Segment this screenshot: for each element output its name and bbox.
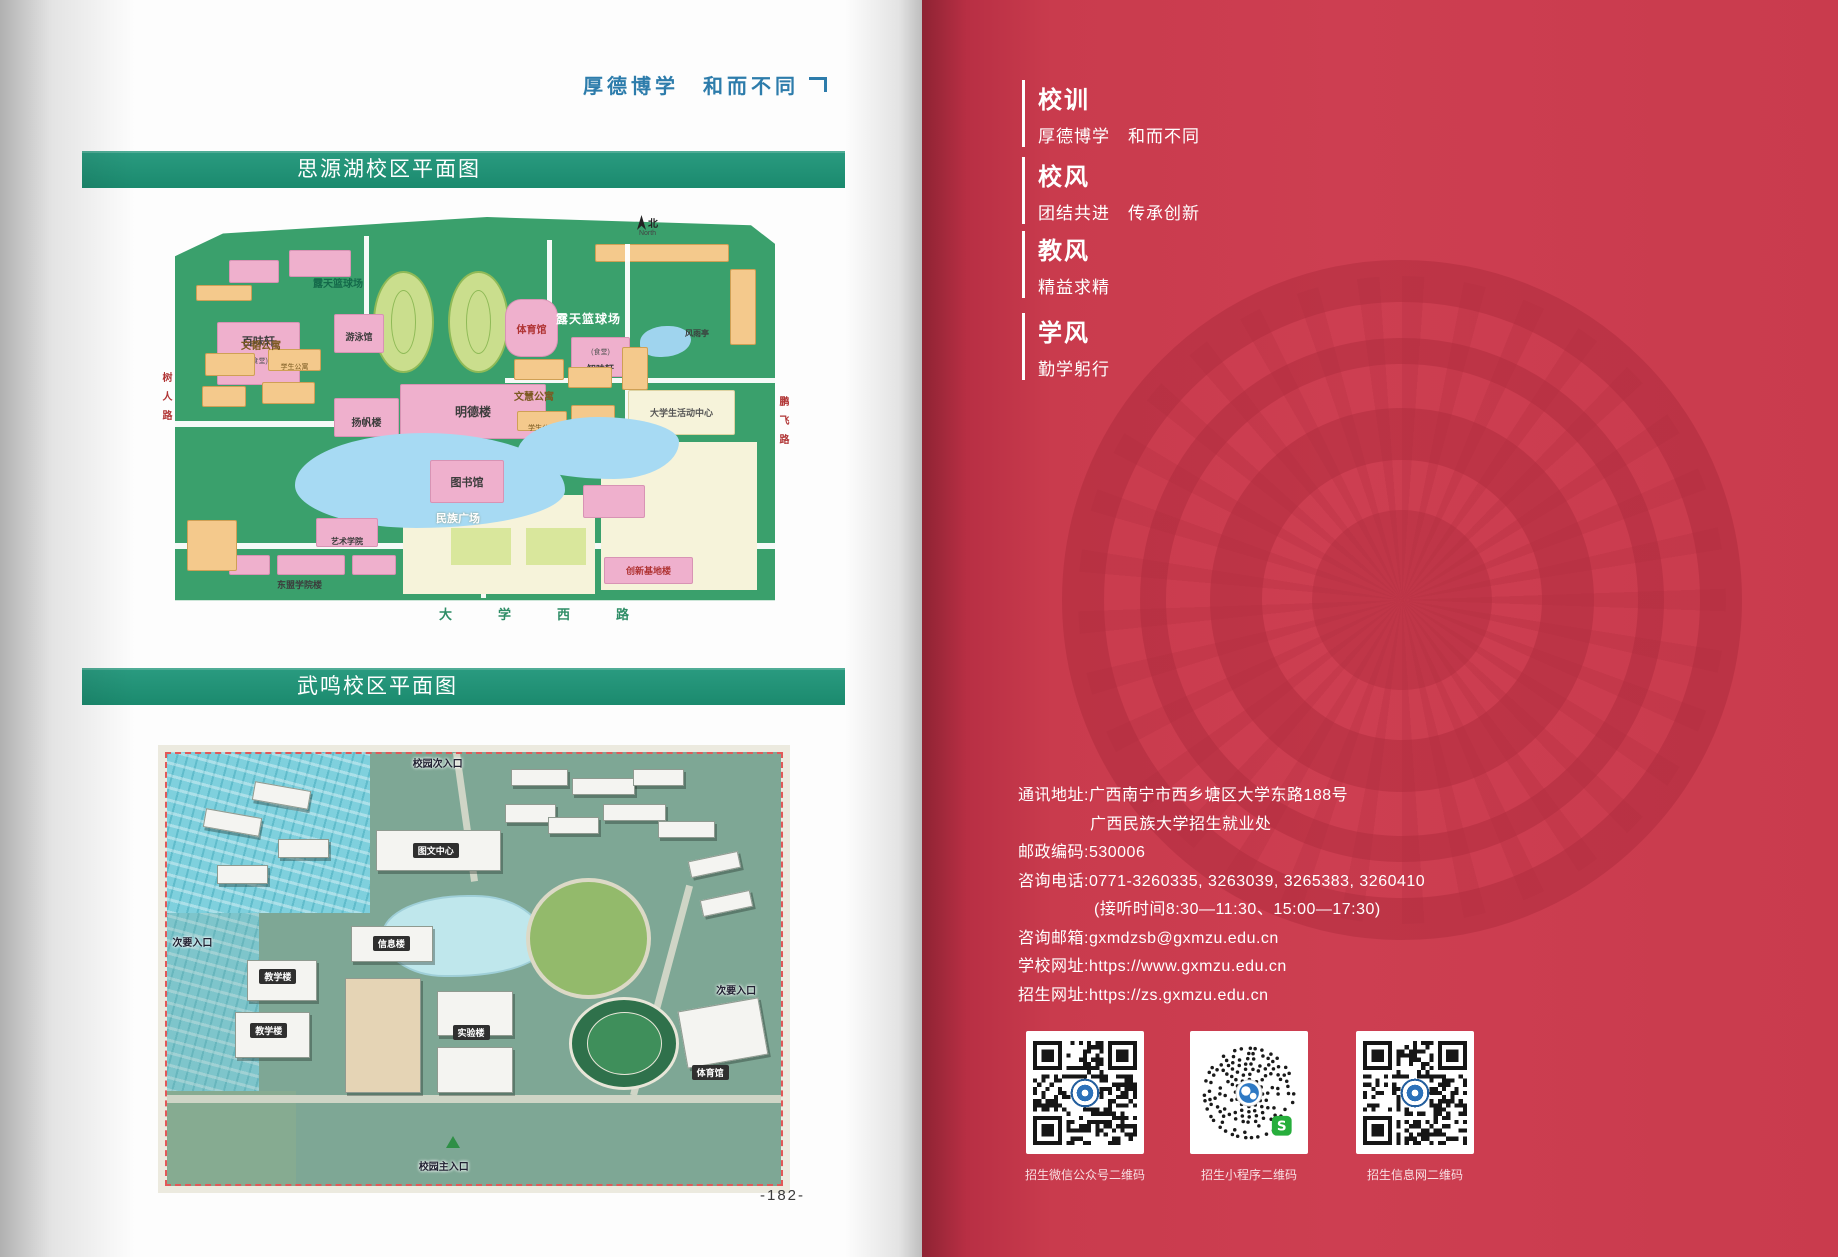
- section-teaching-spirit: 教风 精益求精: [1022, 231, 1110, 298]
- label-innovation: 创新基地楼: [626, 564, 671, 577]
- dorm-block: [262, 382, 315, 405]
- lawn-oval: [526, 878, 650, 999]
- qr-code-image: [1033, 1041, 1137, 1145]
- map-ground: 露天篮球场 百味轩 (食堂) 游泳馆 体育馆 露天篮球场 (食堂) 知味轩: [175, 215, 775, 627]
- label-activity-center: 大学生活动中心: [650, 406, 713, 419]
- building-block: [345, 978, 421, 1093]
- qr-code-image: S: [1197, 1041, 1301, 1145]
- building-block: [278, 839, 329, 858]
- label-gymnasium: 体育馆: [517, 321, 547, 336]
- corner-bracket-icon: [809, 77, 827, 92]
- road-label-left: 树人路: [158, 372, 173, 429]
- banner-siyuan-campus: 思源湖校区平面图: [82, 151, 845, 188]
- building-block: [595, 244, 729, 262]
- building-block: [511, 769, 568, 786]
- lawn: [526, 528, 586, 565]
- building-gymnasium: 体育馆: [505, 299, 558, 357]
- building-block: [687, 851, 740, 878]
- page-edge-shadow: [0, 0, 135, 1257]
- qr-mini-program: S: [1190, 1031, 1308, 1154]
- green-area: [167, 1091, 296, 1187]
- label-asean-bldg: 东盟学院楼: [277, 578, 322, 591]
- building-block: [352, 555, 396, 576]
- main-entrance-arrow-icon: [446, 1136, 460, 1148]
- section-teaching-spirit-content: 精益求精: [1038, 273, 1110, 298]
- building-block: [658, 821, 715, 838]
- label-pavilion: 风雨亭: [685, 328, 709, 339]
- label-wentao-dorm: 文韬公寓: [241, 337, 281, 352]
- label-outdoor-court-2: 露天篮球场: [556, 310, 621, 327]
- compass-needle-icon: [637, 215, 646, 230]
- banner-wuming-title: 武鸣校区平面图: [82, 668, 845, 705]
- building-block: [187, 520, 237, 571]
- building-yangfan: 扬帆楼: [334, 398, 399, 437]
- spine-shadow: [845, 0, 922, 1257]
- building-library: 图书馆: [430, 460, 504, 503]
- label-yangfan: 扬帆楼: [352, 418, 382, 429]
- banner-siyuan-title: 思源湖校区平面图: [82, 151, 845, 188]
- label-dorm: 学生公寓: [281, 364, 309, 371]
- section-school-spirit: 校风 团结共进 传承创新: [1022, 157, 1200, 224]
- label-library: 图书馆: [451, 474, 484, 490]
- qr-wechat-official: [1026, 1031, 1144, 1154]
- building-block: [583, 485, 645, 518]
- compass-n: 北: [648, 215, 658, 230]
- campus-map-wuming: 图文中心 信息楼 教学楼 教学楼 实验楼 体育馆 校园次入口 次要入口 次要入口…: [158, 745, 790, 1193]
- qr-wechat-official-label: 招生微信公众号二维码: [1005, 1166, 1165, 1183]
- building-block: [196, 285, 252, 301]
- building-art-school: 艺术学院: [316, 518, 378, 547]
- stadium: [569, 997, 679, 1090]
- label-gym: 体育馆: [692, 1065, 729, 1080]
- label-side-entrance-east: 次要入口: [716, 982, 756, 997]
- label-main-entrance: 校园主入口: [419, 1158, 469, 1173]
- campus-map-siyuan: 露天篮球场 百味轩 (食堂) 游泳馆 体育馆 露天篮球场 (食堂) 知味轩: [175, 215, 775, 627]
- building-swimming: 游泳馆: [334, 314, 384, 353]
- lawn: [451, 528, 511, 565]
- dorm-block: [622, 347, 648, 390]
- qr-mini-program-label: 招生小程序二维码: [1169, 1166, 1329, 1183]
- building-block: [289, 250, 351, 277]
- section-study-spirit-title: 学风: [1038, 313, 1110, 348]
- contact-admission-site: 招生网址:https://zs.gxmzu.edu.cn: [1018, 982, 1425, 1011]
- label-tuwen-center: 图文中心: [413, 843, 459, 858]
- building-block: [700, 890, 753, 917]
- road-label-bottom: 大学西路: [439, 604, 675, 623]
- banner-wuming-campus: 武鸣校区平面图: [82, 668, 845, 705]
- building-block: [548, 817, 599, 834]
- label-lab-bldg: 实验楼: [453, 1025, 490, 1040]
- water-terrace-area: [167, 752, 369, 913]
- section-teaching-spirit-title: 教风: [1038, 231, 1110, 266]
- compass-north: North: [639, 230, 656, 237]
- building-block: [678, 997, 769, 1069]
- building-innovation: 创新基地楼: [604, 557, 693, 584]
- building-block: [217, 865, 268, 884]
- road-label-right: 鹏飞路: [775, 396, 790, 453]
- label-wenhui-dorm: 文慧公寓: [514, 388, 554, 403]
- label-canteen-suffix: (食堂): [591, 349, 610, 356]
- label-minzu-square: 民族广场: [436, 510, 480, 526]
- page-motto: 厚德博学 和而不同: [583, 70, 827, 99]
- label-outdoor-court-1: 露天篮球场: [313, 275, 363, 290]
- right-page: 校训 厚德博学 和而不同 校风 团结共进 传承创新 教风 精益求精 学风 勤学躬…: [922, 0, 1838, 1257]
- label-north-entrance: 校园次入口: [413, 755, 463, 770]
- building-block: [229, 260, 279, 283]
- label-swimming: 游泳馆: [345, 332, 372, 342]
- section-motto-content: 厚德博学 和而不同: [1038, 122, 1200, 147]
- map-road: [167, 1095, 780, 1103]
- sports-field-oval: [448, 271, 509, 374]
- building-block: [277, 555, 345, 576]
- label-mingde: 明德楼: [455, 403, 491, 420]
- label-teaching-bldg: 教学楼: [259, 969, 296, 984]
- contact-address-2: 广西民族大学招生就业处: [1018, 811, 1425, 840]
- contact-info: 通讯地址:广西南宁市西乡塘区大学东路188号 广西民族大学招生就业处 邮政编码:…: [1018, 782, 1425, 1010]
- section-study-spirit-content: 勤学躬行: [1038, 355, 1110, 380]
- building-block: [730, 269, 756, 345]
- dorm-block: 学生公寓: [268, 349, 321, 372]
- qr-code-image: [1363, 1041, 1467, 1145]
- contact-email: 咨询邮箱:gxmdzsb@gxmzu.edu.cn: [1018, 925, 1425, 954]
- label-info-bldg: 信息楼: [373, 936, 410, 951]
- contact-address: 通讯地址:广西南宁市西乡塘区大学东路188号: [1018, 782, 1425, 811]
- qr-admission-site-label: 招生信息网二维码: [1335, 1166, 1495, 1183]
- brochure-spread: 厚德博学 和而不同 思源湖校区平面图 露天篮球场: [0, 0, 1838, 1257]
- contact-phone-hours: (接听时间8:30—11:30、15:00—17:30): [1018, 896, 1425, 925]
- left-page: 厚德博学 和而不同 思源湖校区平面图 露天篮球场: [0, 0, 922, 1257]
- building-block: [603, 804, 666, 821]
- dorm-block: [205, 353, 255, 376]
- dorm-block: [202, 386, 246, 407]
- section-school-spirit-content: 团结共进 传承创新: [1038, 199, 1200, 224]
- contact-school-site: 学校网址:https://www.gxmzu.edu.cn: [1018, 953, 1425, 982]
- section-school-spirit-title: 校风: [1038, 157, 1200, 192]
- page-number: -182-: [760, 1187, 805, 1204]
- building-block: [572, 778, 635, 795]
- map-road: [175, 421, 355, 427]
- svg-text:S: S: [1277, 1118, 1287, 1134]
- building-block: [633, 769, 684, 786]
- compass: 北 North: [637, 215, 658, 237]
- dorm-block: [568, 367, 612, 388]
- section-motto: 校训 厚德博学 和而不同: [1022, 80, 1200, 147]
- label-art-school: 艺术学院: [331, 537, 363, 546]
- section-motto-title: 校训: [1038, 80, 1200, 115]
- contact-phone: 咨询电话:0771-3260335, 3263039, 3265383, 326…: [1018, 868, 1425, 897]
- qr-admission-site: [1356, 1031, 1474, 1154]
- dorm-block: [514, 359, 564, 380]
- section-study-spirit: 学风 勤学躬行: [1022, 313, 1110, 380]
- map-ground: 图文中心 信息楼 教学楼 教学楼 实验楼 体育馆 校园次入口 次要入口 次要入口…: [167, 752, 780, 1187]
- contact-postcode: 邮政编码:530006: [1018, 839, 1425, 868]
- motto-text: 厚德博学 和而不同: [583, 74, 799, 98]
- label-teaching-bldg: 教学楼: [250, 1023, 287, 1038]
- building-block: [437, 1047, 513, 1092]
- label-side-entrance-west: 次要入口: [172, 934, 212, 949]
